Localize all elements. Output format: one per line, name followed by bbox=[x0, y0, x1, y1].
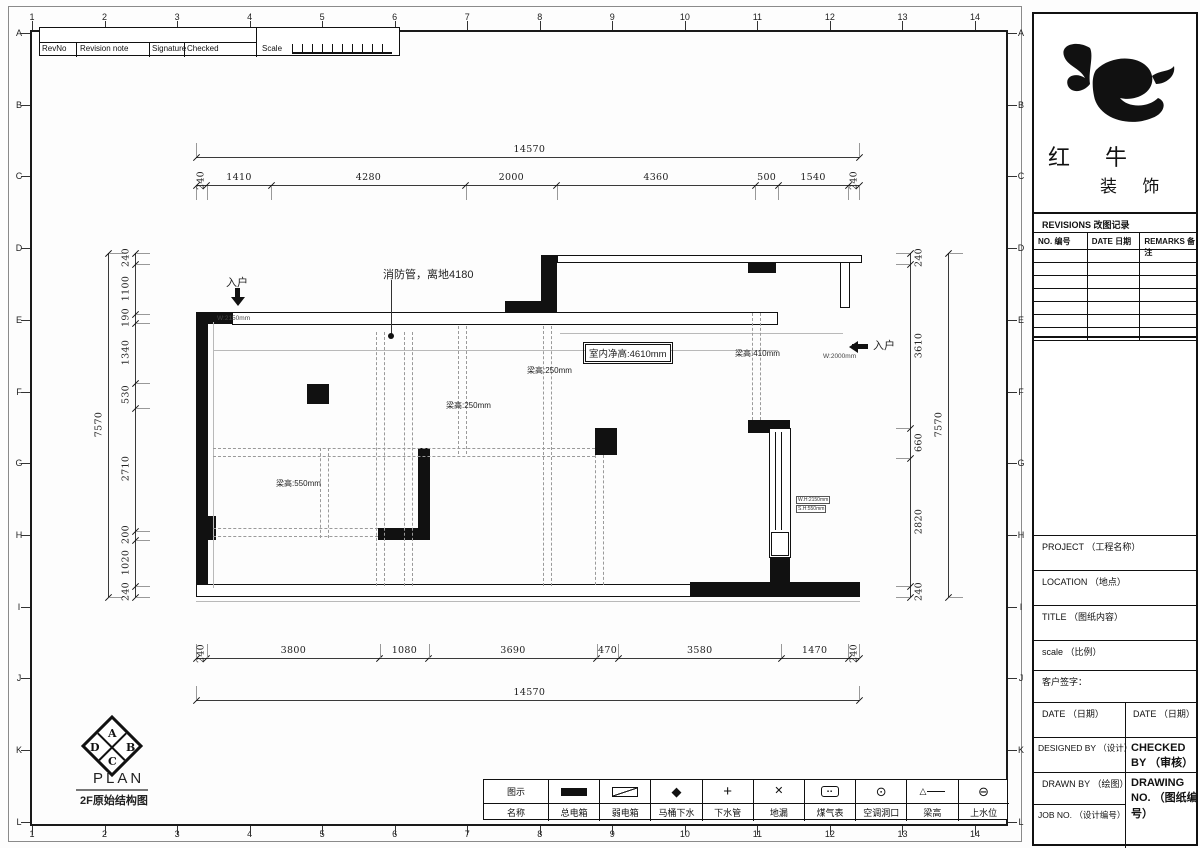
wall-outline bbox=[196, 584, 691, 597]
legend-table: 图示◆+✕▪▪⊙△⊖名称总电箱弱电箱马桶下水下水管地漏煤气表空调洞口梁高上水位 bbox=[483, 779, 1008, 820]
beam-dashed-line bbox=[595, 455, 596, 585]
plan-subtitle: 2F原始结构图 bbox=[80, 792, 148, 808]
dimension-line bbox=[135, 253, 136, 597]
legend-symbol-cell: ◆ bbox=[650, 780, 701, 803]
fire-pipe-note: 消防管，离地4180 bbox=[383, 266, 473, 282]
wall-segment bbox=[418, 448, 430, 540]
dimension-ext-line bbox=[896, 253, 910, 254]
dimension-ext-line bbox=[896, 586, 910, 587]
legend-symbol-cell: ⊖ bbox=[958, 780, 1009, 803]
dimension-value: 2710 bbox=[121, 455, 132, 483]
fire-pipe-leader bbox=[391, 280, 392, 336]
dimension-ext-line bbox=[136, 383, 150, 384]
dimension-ext-line bbox=[896, 264, 910, 265]
dimension-ext-line bbox=[949, 253, 963, 254]
grid-tick bbox=[902, 21, 903, 30]
grid-tick bbox=[1008, 320, 1017, 321]
dimension-value: 1100 bbox=[121, 274, 132, 302]
dimension-ext-line bbox=[949, 597, 963, 598]
dimension-value: 190 bbox=[121, 304, 132, 332]
dimension-ext-line bbox=[136, 540, 150, 541]
grid-tick bbox=[21, 607, 30, 608]
entry-right-width: W:2000mm bbox=[823, 353, 856, 360]
dimension-value: 1080 bbox=[390, 645, 418, 656]
beam-dashed-line bbox=[213, 456, 595, 457]
beam-dashed-line bbox=[213, 448, 595, 449]
title-field-label: LOCATION （地点） bbox=[1034, 571, 1196, 588]
inner-wall-line bbox=[560, 333, 843, 334]
grid-tick bbox=[1008, 463, 1017, 464]
grid-tick bbox=[32, 21, 33, 30]
grid-tick bbox=[975, 826, 976, 835]
checked-label: Checked bbox=[187, 44, 219, 53]
entry-right-label: 入户 bbox=[873, 337, 895, 353]
dimension-value: 240 bbox=[914, 244, 925, 272]
grid-tick bbox=[830, 826, 831, 835]
grid-tick bbox=[21, 535, 30, 536]
grid-tick bbox=[612, 826, 613, 835]
revisions-empty-cell bbox=[1139, 263, 1196, 275]
drawing-no-label: DRAWING NO. （图纸编号） bbox=[1125, 773, 1200, 821]
dimension-value: 1540 bbox=[799, 172, 827, 183]
grid-tick bbox=[540, 826, 541, 835]
grid-tick bbox=[1008, 750, 1017, 751]
legend-header-symbol: 图示 bbox=[484, 780, 548, 803]
dimension-value: 240 bbox=[121, 577, 132, 605]
dimension-ext-line bbox=[136, 586, 150, 587]
beam-height-note-b: 梁高:250mm bbox=[446, 400, 491, 411]
dimension-value: 240 bbox=[914, 577, 925, 605]
grid-tick bbox=[105, 826, 106, 835]
dimension-value: 500 bbox=[753, 172, 781, 183]
entry-left-arrow bbox=[235, 288, 240, 297]
dimension-ext-line bbox=[196, 686, 197, 700]
grid-tick bbox=[32, 826, 33, 835]
title-field-label: 客户签字： bbox=[1034, 671, 1196, 688]
beam-height-note-410: 梁高:410mm bbox=[735, 348, 780, 359]
legend-symbol-cell bbox=[599, 780, 650, 803]
title-panel: 红 牛 装 饰 REVISIONS 改图记录 NO. 编号DATE 日期REMA… bbox=[1032, 12, 1198, 846]
dimension-ext-line bbox=[896, 428, 910, 429]
dimension-ext-line bbox=[136, 323, 150, 324]
revisions-empty-cell bbox=[1034, 302, 1087, 314]
dimension-value: 200 bbox=[121, 521, 132, 549]
date-right-label: DATE （日期） bbox=[1125, 703, 1195, 720]
grid-tick bbox=[395, 826, 396, 835]
legend-name-cell: 上水位 bbox=[958, 803, 1009, 821]
legend-name-cell: 煤气表 bbox=[804, 803, 855, 821]
dimension-ext-line bbox=[380, 644, 381, 658]
legend-symbol-cell bbox=[548, 780, 599, 803]
legend-symbol-cell: ▪▪ bbox=[804, 780, 855, 803]
entry-left-width: W:2150mm bbox=[217, 315, 250, 322]
dimension-value: 4360 bbox=[642, 172, 670, 183]
revisions-empty-area bbox=[1034, 336, 1196, 535]
dimension-ext-line bbox=[136, 597, 150, 598]
title-field: 客户签字： bbox=[1034, 670, 1196, 702]
revisions-empty-cell bbox=[1087, 276, 1140, 288]
dimension-value: 2000 bbox=[497, 172, 525, 183]
revisions-empty-cell bbox=[1034, 315, 1087, 327]
legend-symbol-cell: ⊙ bbox=[855, 780, 906, 803]
dimension-value: 3610 bbox=[914, 331, 925, 359]
plan-title: PLAN bbox=[93, 770, 144, 787]
dimension-ext-line bbox=[778, 186, 779, 200]
legend-symbol-cell: + bbox=[702, 780, 753, 803]
revisions-empty-cell bbox=[1087, 302, 1140, 314]
plan-title-underline bbox=[76, 789, 148, 791]
legend-name-cell: 下水管 bbox=[702, 803, 753, 821]
revisions-empty-cell bbox=[1034, 263, 1087, 275]
dimension-ext-line bbox=[207, 186, 208, 200]
dimension-value: 1410 bbox=[225, 172, 253, 183]
revisions-empty-cell bbox=[1087, 289, 1140, 301]
dimension-value: 1020 bbox=[121, 548, 132, 576]
legend-name-cell: 马桶下水 bbox=[650, 803, 701, 821]
revisions-empty-cell bbox=[1087, 250, 1140, 262]
revisions-header-cell: NO. 编号 bbox=[1034, 233, 1087, 249]
gas-meter-icon: ▪▪ bbox=[821, 786, 839, 797]
beam-height-icon: △ bbox=[919, 786, 945, 797]
job-no-label: JOB NO. （设计编号） bbox=[1034, 805, 1125, 821]
toilet-drain-icon: ◆ bbox=[671, 785, 681, 798]
title-field: scale （比例） bbox=[1034, 640, 1196, 670]
inner-wall-line bbox=[196, 601, 860, 602]
dimension-line bbox=[196, 185, 859, 186]
ceiling-height-note: 室内净高:4610mm bbox=[585, 344, 671, 362]
entry-right-arrow bbox=[852, 344, 868, 349]
dimension-value: 240 bbox=[121, 244, 132, 272]
dimension-value: 660 bbox=[914, 428, 925, 456]
grid-tick bbox=[467, 21, 468, 30]
dimension-value: 3580 bbox=[686, 645, 714, 656]
brand-name-top: 红 牛 bbox=[1048, 140, 1141, 172]
dimension-value: 14570 bbox=[514, 687, 542, 698]
grid-tick bbox=[467, 826, 468, 835]
wall-outline bbox=[840, 262, 850, 308]
wall-segment bbox=[541, 255, 557, 313]
dimension-ext-line bbox=[781, 644, 782, 658]
grid-tick bbox=[1008, 248, 1017, 249]
window-note-1: W.H:2150mm bbox=[796, 496, 830, 504]
dimension-value: 2820 bbox=[914, 508, 925, 536]
drain-pipe-icon: + bbox=[723, 784, 732, 799]
grid-tick bbox=[21, 392, 30, 393]
compass-letter-a: A bbox=[108, 727, 117, 740]
revision-strip-row bbox=[40, 42, 256, 58]
dimension-value: 240 bbox=[848, 167, 859, 195]
grid-tick bbox=[1008, 392, 1017, 393]
beam-dashed-line bbox=[320, 448, 321, 538]
dimension-ext-line bbox=[136, 408, 150, 409]
water-supply-icon: ⊖ bbox=[978, 785, 989, 798]
revisions-empty-cell bbox=[1139, 315, 1196, 327]
dimension-line bbox=[196, 658, 859, 659]
revisions-empty-cell bbox=[1034, 276, 1087, 288]
grid-tick bbox=[1008, 33, 1017, 34]
dimension-value: 3690 bbox=[499, 645, 527, 656]
grid-tick bbox=[612, 21, 613, 30]
legend-name-cell: 总电箱 bbox=[548, 803, 599, 821]
wall-outline bbox=[771, 532, 789, 556]
window-mullion bbox=[781, 432, 782, 530]
compass-letter-d: D bbox=[90, 741, 100, 754]
compass-letter-b: B bbox=[126, 741, 135, 754]
grid-tick bbox=[685, 21, 686, 30]
grid-tick bbox=[21, 176, 30, 177]
dimension-line bbox=[196, 157, 859, 158]
beam-dashed-line bbox=[752, 313, 753, 420]
window-note-2: S.H:550mm bbox=[796, 505, 826, 513]
revno-label: RevNo bbox=[42, 44, 66, 53]
title-field-label: scale （比例） bbox=[1034, 641, 1196, 658]
dimension-value: 7570 bbox=[934, 411, 945, 439]
legend-name-cell: 梁高 bbox=[906, 803, 957, 821]
grid-tick bbox=[757, 21, 758, 30]
dimension-ext-line bbox=[429, 644, 430, 658]
dimension-ext-line bbox=[859, 686, 860, 700]
checked-by-label: CHECKED BY （审核） bbox=[1125, 738, 1200, 770]
main-electric-box-icon bbox=[561, 788, 587, 796]
revisions-empty-cell bbox=[1087, 315, 1140, 327]
wall-segment bbox=[307, 384, 329, 404]
brand-logo bbox=[1052, 42, 1182, 152]
beam-height-note-550: 梁高:550mm bbox=[276, 478, 321, 489]
dimension-value: 240 bbox=[848, 640, 859, 668]
legend-name-cell: 弱电箱 bbox=[599, 803, 650, 821]
grid-tick bbox=[177, 826, 178, 835]
dimension-value: 240 bbox=[196, 640, 207, 668]
beam-dashed-line bbox=[376, 332, 377, 586]
grid-tick bbox=[21, 33, 30, 34]
dimension-ext-line bbox=[207, 644, 208, 658]
wall-segment bbox=[196, 312, 208, 597]
compass-letter-c: C bbox=[108, 755, 117, 768]
grid-tick bbox=[1008, 105, 1017, 106]
revisions-empty-cell bbox=[1139, 250, 1196, 262]
revisions-header-cell: REMARKS 备注 bbox=[1139, 233, 1196, 249]
beam-dashed-line bbox=[213, 536, 378, 537]
grid-tick bbox=[21, 463, 30, 464]
brand-name-bottom: 装 饰 bbox=[1100, 172, 1169, 197]
legend-symbol-cell: △ bbox=[906, 780, 957, 803]
beam-dashed-line bbox=[760, 313, 761, 420]
beam-line bbox=[927, 791, 945, 792]
grid-tick bbox=[322, 826, 323, 835]
beam-dashed-line bbox=[466, 326, 467, 454]
entry-left-arrowhead bbox=[231, 297, 245, 313]
legend-symbol-cell: ✕ bbox=[753, 780, 804, 803]
grid-tick bbox=[830, 21, 831, 30]
revisions-empty-cell bbox=[1139, 289, 1196, 301]
revisions-empty-cell bbox=[1034, 250, 1087, 262]
grid-tick bbox=[21, 750, 30, 751]
grid-tick bbox=[975, 21, 976, 30]
title-field-label: PROJECT （工程名称） bbox=[1034, 536, 1196, 553]
revisions-table: NO. 编号DATE 日期REMARKS 备注 bbox=[1034, 232, 1196, 336]
grid-tick bbox=[685, 826, 686, 835]
title-field: TITLE （图纸内容） bbox=[1034, 605, 1196, 640]
beam-dashed-line bbox=[328, 448, 329, 538]
dimension-line bbox=[948, 253, 949, 597]
dimension-ext-line bbox=[859, 143, 860, 157]
drawing-sheet: 11223344556677889910101111121213131414AA… bbox=[0, 0, 1200, 848]
dimension-ext-line bbox=[136, 531, 150, 532]
title-field: LOCATION （地点） bbox=[1034, 570, 1196, 605]
signature-label: Signature bbox=[152, 44, 186, 53]
dimension-ext-line bbox=[136, 264, 150, 265]
beam-dashed-line bbox=[384, 332, 385, 586]
dimension-value: 14570 bbox=[514, 144, 542, 155]
scale-ruler bbox=[292, 44, 392, 54]
wall-segment bbox=[595, 428, 617, 455]
title-field: PROJECT （工程名称） bbox=[1034, 535, 1196, 570]
legend-name-cell: 空调洞口 bbox=[855, 803, 906, 821]
beam-dashed-line bbox=[603, 455, 604, 585]
dimension-value: 1340 bbox=[121, 338, 132, 366]
grid-tick bbox=[1008, 678, 1017, 679]
beam-dashed-line bbox=[412, 332, 413, 586]
dimension-ext-line bbox=[896, 597, 910, 598]
dimension-ext-line bbox=[136, 314, 150, 315]
dimension-ext-line bbox=[557, 186, 558, 200]
grid-tick bbox=[1008, 176, 1017, 177]
inner-wall-line bbox=[213, 322, 214, 588]
dimension-line bbox=[108, 253, 109, 597]
beam-dashed-line bbox=[213, 528, 378, 529]
grid-tick bbox=[1008, 535, 1017, 536]
dimension-value: 530 bbox=[121, 381, 132, 409]
dimension-ext-line bbox=[196, 143, 197, 157]
grid-tick bbox=[21, 678, 30, 679]
beam-dashed-line bbox=[404, 332, 405, 586]
dimension-value: 240 bbox=[196, 167, 207, 195]
wall-segment bbox=[770, 556, 790, 597]
grid-tick bbox=[902, 826, 903, 835]
legend-header-name: 名称 bbox=[484, 803, 548, 821]
revisions-title: REVISIONS 改图记录 bbox=[1034, 214, 1196, 231]
grid-tick bbox=[1008, 822, 1017, 823]
grid-tick bbox=[540, 21, 541, 30]
ac-opening-icon: ⊙ bbox=[876, 785, 887, 798]
revision-note-label: Revision note bbox=[80, 44, 128, 53]
dimension-value: 4280 bbox=[354, 172, 382, 183]
beam-dashed-line bbox=[458, 326, 459, 454]
title-field-label: TITLE （图纸内容） bbox=[1034, 606, 1196, 623]
dimension-line bbox=[196, 700, 859, 701]
dimension-ext-line bbox=[896, 458, 910, 459]
dimension-value: 7570 bbox=[94, 411, 105, 439]
legend-name-cell: 地漏 bbox=[753, 803, 804, 821]
grid-tick bbox=[250, 826, 251, 835]
revision-strip: RevNo Revision note Signature Checked Sc… bbox=[39, 27, 400, 56]
revisions-empty-cell bbox=[1139, 276, 1196, 288]
grid-tick bbox=[21, 822, 30, 823]
grid-tick bbox=[757, 826, 758, 835]
dimension-value: 470 bbox=[594, 645, 622, 656]
grid-tick bbox=[21, 105, 30, 106]
beam-triangle: △ bbox=[919, 786, 926, 797]
weak-electric-box-icon bbox=[612, 787, 638, 797]
inner-wall-line bbox=[213, 350, 778, 351]
fire-pipe-dot bbox=[388, 333, 394, 339]
revisions-empty-cell bbox=[1087, 263, 1140, 275]
grid-tick bbox=[21, 248, 30, 249]
wall-outline bbox=[557, 255, 862, 263]
scale-label: Scale bbox=[262, 44, 282, 53]
revisions-empty-cell bbox=[1139, 302, 1196, 314]
dimension-value: 1470 bbox=[801, 645, 829, 656]
wall-outline bbox=[232, 312, 778, 325]
dimension-line bbox=[910, 253, 911, 597]
dimension-value: 3800 bbox=[279, 645, 307, 656]
dimension-ext-line bbox=[466, 186, 467, 200]
revisions-header-cell: DATE 日期 bbox=[1087, 233, 1140, 249]
window-mullion bbox=[775, 432, 776, 530]
beam-height-note-a: 梁高:250mm bbox=[527, 365, 572, 376]
dimension-ext-line bbox=[755, 186, 756, 200]
grid-tick bbox=[1008, 607, 1017, 608]
dimension-ext-line bbox=[136, 253, 150, 254]
revisions-empty-cell bbox=[1034, 289, 1087, 301]
dimension-ext-line bbox=[271, 186, 272, 200]
grid-tick bbox=[21, 320, 30, 321]
floor-drain-icon: ✕ bbox=[774, 786, 783, 797]
